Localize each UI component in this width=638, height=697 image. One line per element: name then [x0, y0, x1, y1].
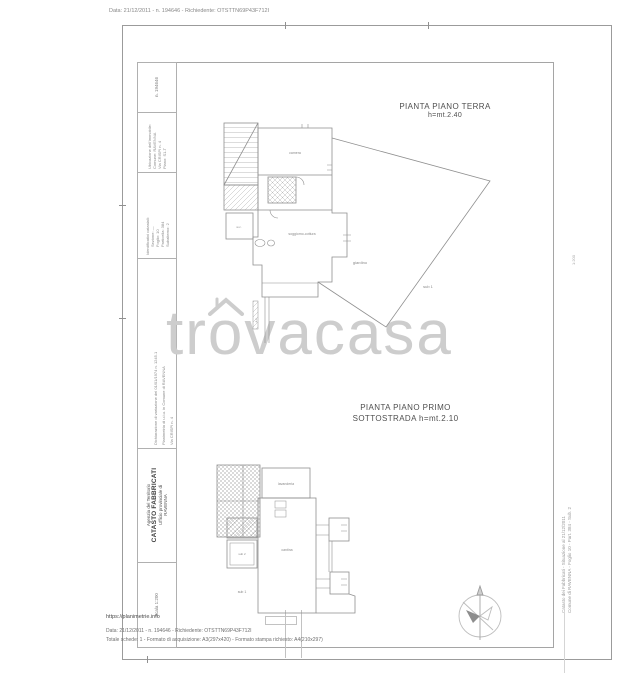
plan-sottostrada-title-2: SOTTOSTRADA h=mt.2.10 [318, 414, 493, 424]
protocol-number: n. 194646 [154, 65, 160, 109]
right-margin-scale-note: 1:200 [571, 245, 576, 265]
fold-tick-bottom-1 [147, 656, 148, 663]
sottostrada-bump-upper [329, 518, 349, 541]
sottostrada-label-cantina: cantina [281, 548, 292, 552]
titleblock-scale-rotated: Scala 1:200 [138, 562, 176, 648]
scan-artifact-line [564, 613, 565, 673]
identifier-line: Subalterno: 2 [165, 175, 170, 255]
terra-label-duct: a.c. [254, 317, 258, 322]
compass-light-flag [480, 607, 492, 620]
terra-label-camera: camera [289, 151, 301, 155]
terra-bath-fixture [255, 240, 265, 247]
top-meta-line: Data: 21/12/2011 - n. 194646 - Richieden… [109, 8, 269, 15]
titleblock-agency-rotated: Agenzia del Territorio CATASTO FABBRICAT… [138, 448, 176, 562]
fold-tick-left-2 [119, 318, 126, 319]
location-line: Piano: S1-T [162, 115, 167, 169]
sottostrada-opening-ticks [341, 525, 347, 585]
north-arrow-icon [448, 580, 512, 648]
sottostrada-label-sub1: sub 1 [238, 590, 247, 594]
terra-sink-fixture [268, 240, 275, 246]
declaration-line: Dichiarazione di variazione del 01/01/19… [153, 261, 158, 445]
sottostrada-label-sub2: sub 2 [238, 552, 246, 556]
watermark-text-pre: tr [166, 299, 208, 368]
floor-plan-sottostrada-drawing: lavanderia cantina sub 2 sub 1 [207, 455, 362, 620]
terra-label-soggiorno: soggiorno-cottura [288, 232, 315, 236]
sottostrada-bottom-extension [316, 594, 355, 613]
compass-dark-flag [466, 610, 480, 623]
terra-duct [253, 301, 258, 329]
sottostrada-lower-stairs [227, 518, 257, 538]
plan-terra-title: PIANTA PIANO TERRA [360, 102, 530, 112]
terra-internal-stairs [268, 177, 296, 203]
fold-tick-top-2 [428, 22, 429, 29]
agency-province: RAVENNA [163, 451, 168, 559]
right-margin-scale-note-rotated: 1:200 [569, 242, 578, 268]
terra-label-giardino: giardino [353, 260, 368, 265]
footer-meta-line-2: Totale schede: 1 - Formato di acquisizio… [106, 637, 323, 644]
scanned-cadastral-document: { "meta": { "top_line": "Data: 21/12/201… [0, 0, 638, 697]
fold-tick-top-1 [285, 22, 286, 29]
fold-tick-left-1 [119, 205, 126, 206]
floor-plan-terra-drawing: camera soggiorno-cottura w.c. giardino s… [210, 115, 500, 345]
terra-label-wc: w.c. [236, 225, 241, 229]
terra-stairs-lower-hatch [224, 185, 258, 210]
right-margin-rotated-text: Catasto dei Fabbricati - Situazione al 2… [557, 434, 576, 616]
footer-meta-line-1: Data: 21/12/2011 - n. 194646 - Richieden… [106, 628, 252, 635]
right-margin-line-2: Comune di RAVENNA - Foglio 10 - Part. 38… [567, 437, 573, 613]
titleblock-identifiers-rotated: Identificativi catastali: Sezione: — Fog… [138, 172, 176, 258]
terra-walls [224, 123, 490, 343]
sottostrada-main-room [258, 498, 316, 613]
compass-arrowhead [477, 586, 483, 595]
titleblock-location-rotated: Ubicazione dell'immobile: Comune: RAVENN… [138, 112, 176, 172]
terra-garden-boundary [318, 138, 490, 327]
agency-catasto-fabbricati: CATASTO FABBRICATI [151, 451, 158, 559]
sottostrada-bump-lower [330, 572, 349, 594]
sottostrada-landing-step-1 [275, 501, 286, 508]
terra-path-stem [265, 297, 269, 343]
plan-sottostrada-title-1: PIANTA PIANO PRIMO [328, 403, 483, 413]
sottostrada-label-lavanderia: lavanderia [278, 482, 294, 486]
footer-url: https://planimetrie.info [106, 614, 160, 621]
sottostrada-landing-step-2 [275, 510, 286, 517]
titleblock-protocol-rotated: n. 194646 [138, 62, 176, 112]
terra-label-sub: sub 1 [423, 284, 434, 289]
